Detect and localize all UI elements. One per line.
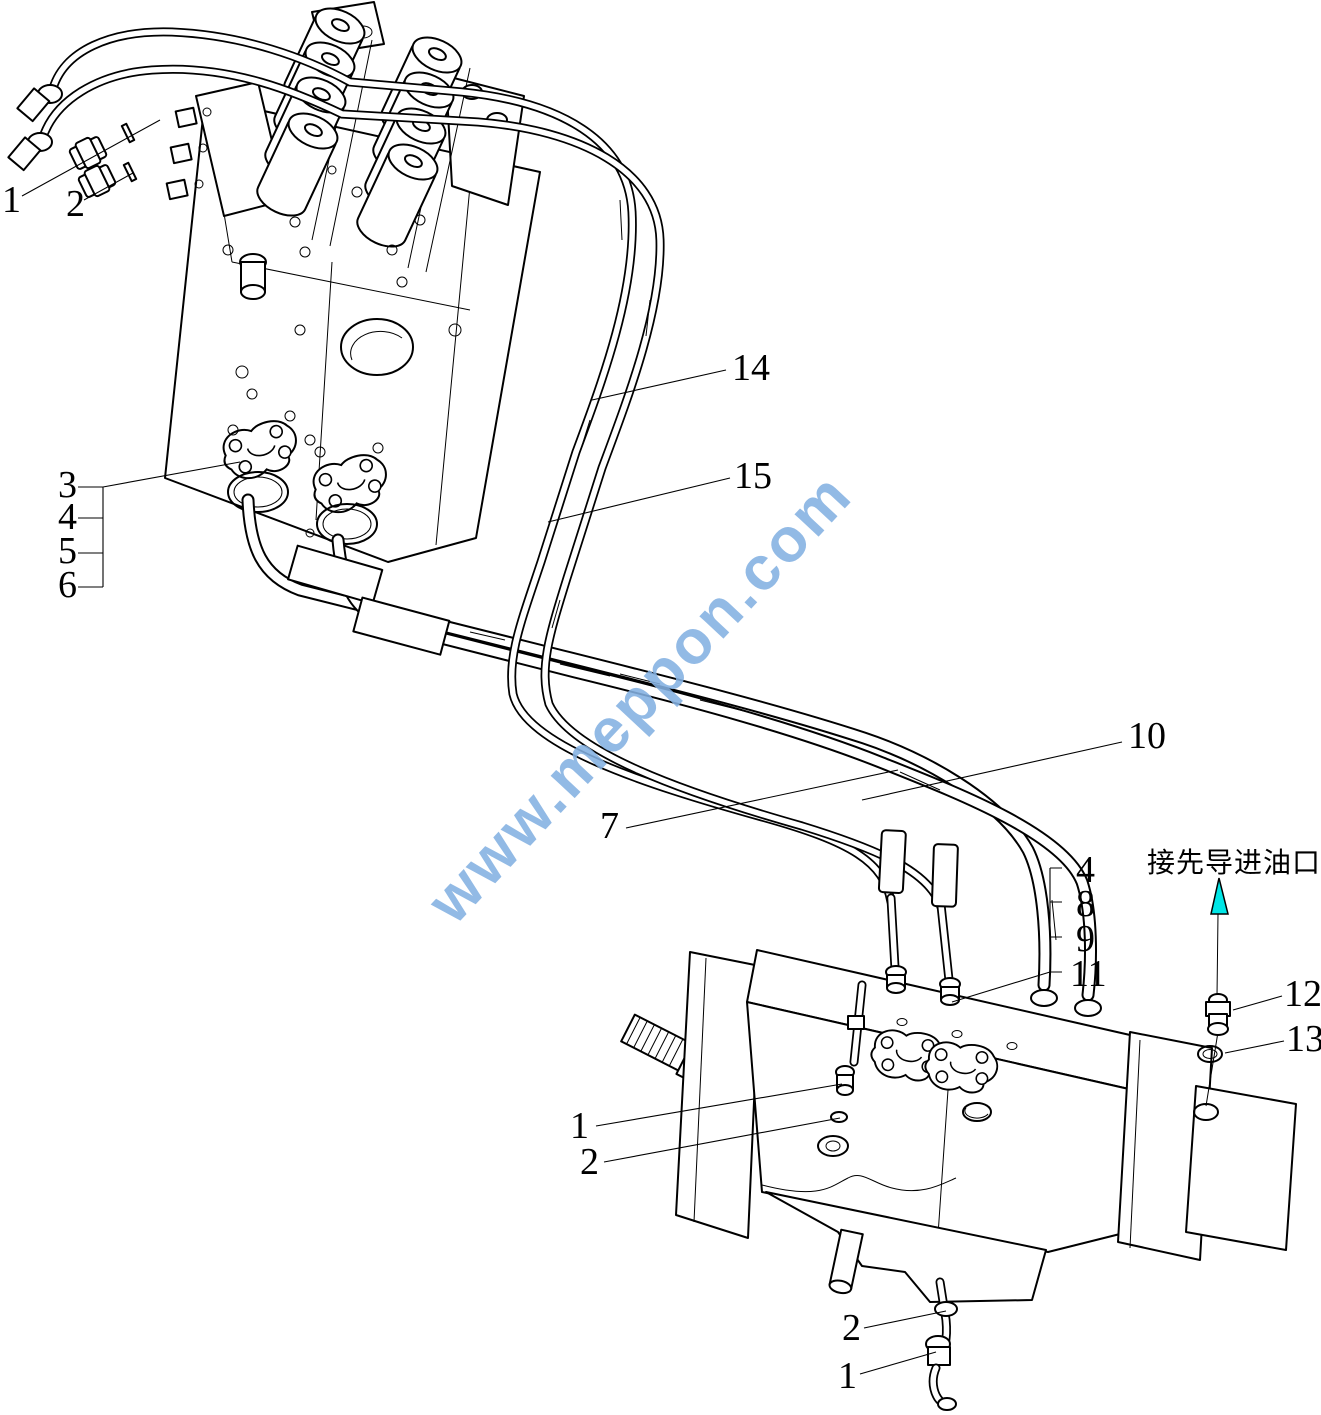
hose-sleeve [879,830,906,893]
callout-10-label: 10 [1128,715,1166,757]
pilot-port-note: 接先导进油口 [1147,847,1321,878]
hose-sleeve [353,598,449,655]
callout-drain-2-leader [864,1311,946,1328]
bottom-pin [828,1230,862,1295]
diagram-page: 1 2 3 4 5 6 14 15 10 7 4 8 9 11 12 13 1 … [0,0,1321,1415]
hose-sleeve [932,844,958,907]
pilot-hose-surface-lines [552,200,650,628]
callout-15-label: 15 [734,455,772,497]
diagram-canvas: 1 2 3 4 5 6 14 15 10 7 4 8 9 11 12 13 1 … [0,0,1321,1415]
callout-drain-1-label: 1 [838,1355,857,1397]
callout-14-label: 14 [732,347,770,389]
pump-valve-plate [1186,1086,1296,1250]
callout-drain-1-leader [860,1352,936,1374]
callout-left-6-label: 6 [58,564,77,606]
watermark: www.meppon.com [414,460,866,937]
callout-14-leader [592,370,726,400]
callout-13-leader [1225,1041,1284,1053]
hose-bundle-main [248,500,1090,995]
callout-right-11-label: 11 [1070,953,1107,995]
pilot-port-arrow-icon [1211,878,1228,914]
hose-collar [1075,1000,1101,1016]
drain-oring [935,1302,957,1316]
hex-plug [240,254,266,299]
hose-elbow-fittings [8,85,62,170]
callout-drain-2-label: 2 [842,1307,861,1349]
callout-12-label: 12 [1284,973,1321,1015]
washer [831,1112,847,1122]
callout-top-1-label: 1 [2,179,21,221]
hose-collar [1031,990,1057,1006]
callout-pump-2-label: 2 [580,1141,599,1183]
callout-top-2-label: 2 [66,183,85,225]
watermark-text: www.meppon.com [414,460,866,937]
tube-nut [848,1016,864,1029]
callout-7-label: 7 [600,805,619,847]
callout-13-label: 13 [1286,1018,1321,1060]
callout-12-leader [1233,996,1282,1010]
fitting-12 [1206,994,1230,1035]
callout-15-leader [548,478,730,522]
